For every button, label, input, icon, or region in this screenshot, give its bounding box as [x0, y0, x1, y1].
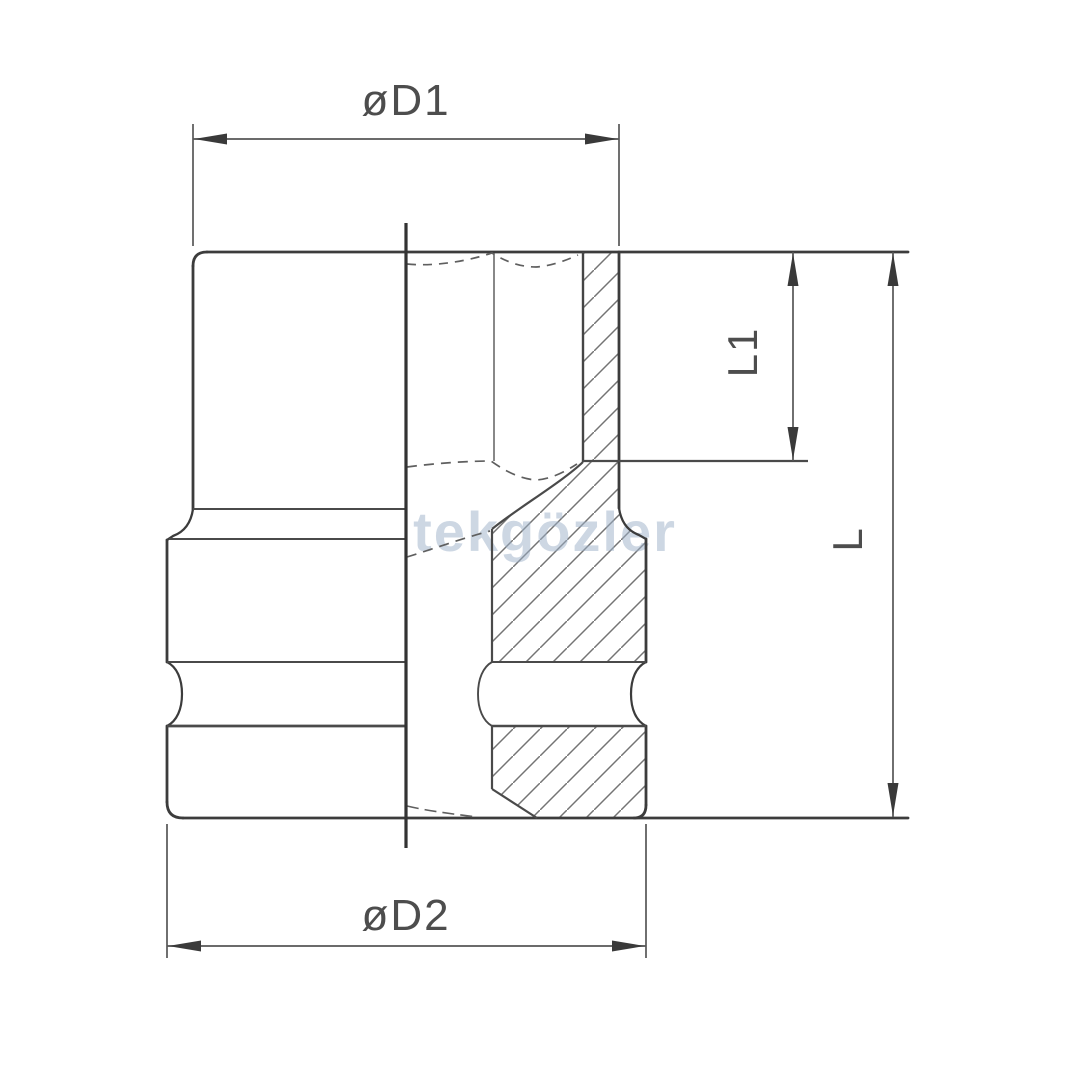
technical-drawing-socket-section: tekgözler: [0, 0, 1080, 1080]
hex-chamfer-scallop: [407, 253, 578, 267]
d2-label: øD2: [361, 891, 450, 940]
l1-label: L1: [719, 327, 766, 378]
square-entry-curve: [407, 806, 477, 817]
hatch-upper-wall: [492, 252, 646, 662]
groove-left: [167, 662, 182, 726]
corner-top-left: [193, 252, 207, 266]
d2-arrow-right: [612, 941, 645, 952]
d1-arrow-left: [194, 134, 227, 145]
groove-right: [631, 662, 646, 726]
d1-label: øD1: [361, 76, 450, 125]
hex-bottom-scallop: [407, 461, 577, 480]
pinhole-left-arc: [478, 662, 492, 726]
drawing-canvas: tekgözler: [0, 0, 1080, 1080]
l-label: L: [824, 526, 871, 551]
d1-arrow-right: [585, 134, 618, 145]
l1-arrow-top: [788, 253, 799, 286]
watermark-text: tekgözler: [413, 500, 677, 563]
corner-bottom-left: [167, 802, 183, 818]
l-arrow-bottom: [888, 783, 899, 816]
step-left: [167, 509, 193, 540]
l-arrow-top: [888, 253, 899, 286]
d2-arrow-left: [168, 941, 201, 952]
l1-arrow-bottom: [788, 427, 799, 460]
